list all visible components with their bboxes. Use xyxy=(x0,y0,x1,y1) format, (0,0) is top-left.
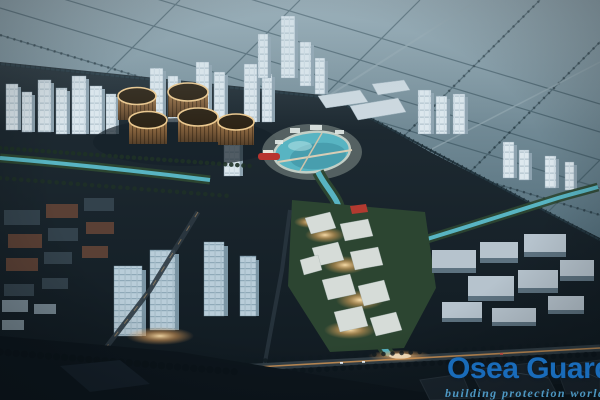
city-masterplan-render: Osea Guard building protection world xyxy=(0,0,600,400)
render-scene xyxy=(0,0,600,400)
vignette-overlay xyxy=(0,0,600,400)
